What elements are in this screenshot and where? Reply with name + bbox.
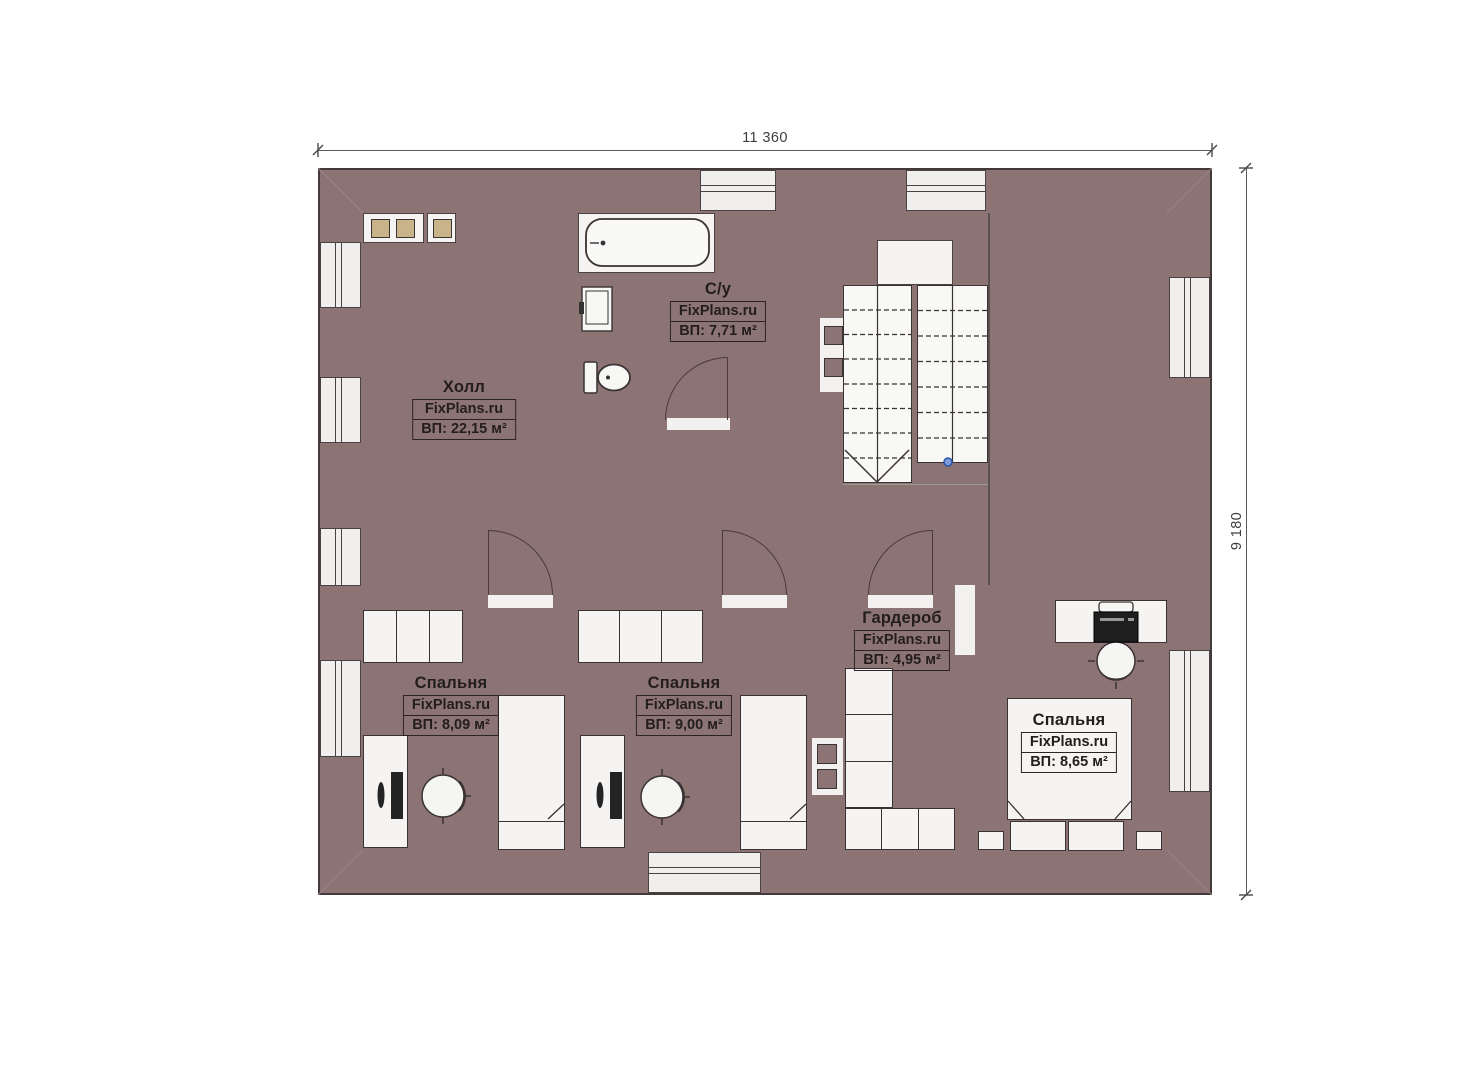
vent-duct (824, 326, 843, 345)
bedroom-2-desk (580, 735, 625, 848)
room-label-bedroom-3: Спальня FixPlans.ru ВП: 8,65 м² (1021, 711, 1117, 773)
window-left-2 (320, 377, 361, 443)
room-label-bedroom-2: Спальня FixPlans.ru ВП: 9,00 м² (636, 674, 732, 736)
dimension-height-label: 9 180 (1229, 512, 1245, 550)
room-name: Гардероб (854, 609, 950, 628)
room-area-text: ВП: 7,71 м² (671, 321, 765, 341)
room-info-box: FixPlans.ru ВП: 9,00 м² (636, 695, 732, 736)
stair-landing (877, 240, 953, 285)
window-left-4-bedroom-1 (320, 660, 361, 757)
floor-plan-page: { "plan": { "dimension_width_label": "11… (0, 0, 1473, 1080)
room-name: Спальня (403, 674, 499, 693)
hall-south-wall-c (787, 595, 868, 608)
bedroom-3-pillow-2 (1068, 821, 1124, 851)
bed-blanket-line (741, 821, 806, 822)
bathroom-east-wall-lower (820, 392, 845, 418)
dimension-line-right (1246, 168, 1247, 895)
stairwell-partition-line (988, 213, 990, 585)
door-opening-bedroom-3 (955, 585, 975, 655)
wardrobe-east-wall (955, 655, 975, 850)
watermark-text: FixPlans.ru (637, 696, 731, 715)
dimension-width-label: 11 360 (742, 130, 788, 146)
vent-duct (824, 358, 843, 377)
room-info-box: FixPlans.ru ВП: 8,09 м² (403, 695, 499, 736)
room-label-hall: Холл FixPlans.ru ВП: 22,15 м² (412, 378, 516, 440)
room-area-text: ВП: 4,95 м² (855, 650, 949, 670)
cabinet-box (396, 219, 415, 238)
room-name: Холл (412, 378, 516, 397)
room-area-text: ВП: 9,00 м² (637, 715, 731, 735)
bedroom-3-north-wall (975, 585, 1167, 598)
cabinet-box (433, 219, 452, 238)
bedroom-3-nightstand-right (1136, 831, 1162, 850)
watermark-text: FixPlans.ru (1022, 733, 1116, 752)
vent-duct-niche-bathroom (820, 318, 845, 392)
room-area-text: ВП: 8,09 м² (404, 715, 498, 735)
room-label-wardrobe: Гардероб FixPlans.ru ВП: 4,95 м² (854, 609, 950, 671)
bedroom-1-desk (363, 735, 408, 848)
window-top-2 (906, 170, 986, 211)
vent-duct (817, 769, 837, 789)
door-threshold-bedroom-1 (488, 595, 553, 608)
bedroom-3-pillow-1 (1010, 821, 1066, 851)
bedroom-3-nightstand-left (978, 831, 1004, 850)
dimension-line-top (318, 150, 1212, 151)
watermark-text: FixPlans.ru (404, 696, 498, 715)
vent-duct-niche-bedroom (812, 738, 843, 795)
hall-south-wall-d (933, 595, 955, 608)
bed-blanket-line (499, 821, 564, 822)
wardrobe-shelf-bottom (845, 808, 955, 850)
watermark-text: FixPlans.ru (855, 631, 949, 650)
door-threshold-bedroom-2 (722, 595, 787, 608)
stair-hall-boundary-line (843, 484, 988, 485)
bathroom-south-wall-right (730, 418, 845, 430)
room-area-text: ВП: 8,65 м² (1022, 752, 1116, 772)
room-name: Спальня (1021, 711, 1117, 730)
stair-flight-right (917, 285, 988, 463)
room-label-bathroom: С/у FixPlans.ru ВП: 7,71 м² (670, 280, 766, 342)
room-info-box: FixPlans.ru ВП: 22,15 м² (412, 399, 516, 440)
room-info-box: FixPlans.ru ВП: 8,65 м² (1021, 732, 1117, 773)
hall-south-wall-b (553, 595, 722, 608)
bedroom-divider-wall-2 (810, 608, 845, 850)
bathroom-south-wall-left (565, 418, 667, 430)
room-name: С/у (670, 280, 766, 299)
bedroom-divider-wall-1 (565, 608, 578, 850)
watermark-text: FixPlans.ru (413, 400, 515, 419)
room-area-text: ВП: 22,15 м² (413, 419, 515, 439)
room-info-box: FixPlans.ru ВП: 4,95 м² (854, 630, 950, 671)
bedroom-2-bed (740, 695, 807, 850)
room-label-bedroom-1: Спальня FixPlans.ru ВП: 8,09 м² (403, 674, 499, 736)
bathroom-west-wall (565, 213, 578, 430)
door-threshold-wardrobe (868, 595, 933, 608)
window-bottom-bedroom-2 (648, 852, 761, 893)
bathroom-east-wall-upper (820, 213, 845, 318)
vent-duct (817, 744, 837, 764)
bathtub-niche (578, 213, 715, 273)
room-name: Спальня (636, 674, 732, 693)
window-right-2-bedroom-3 (1169, 650, 1210, 792)
window-left-1 (320, 242, 361, 308)
bedroom-1-bed (498, 695, 565, 850)
hall-south-wall-a (363, 595, 488, 608)
bedroom-2-wardrobe-cabinet (578, 610, 703, 663)
cabinet-box (371, 219, 390, 238)
floor-plan: 11 360 9 180 (0, 0, 1473, 1080)
window-left-3 (320, 528, 361, 586)
bedroom-1-wardrobe-cabinet (363, 610, 463, 663)
watermark-text: FixPlans.ru (671, 302, 765, 321)
wardrobe-shelf-left (845, 668, 893, 808)
window-top-1 (700, 170, 776, 211)
bedroom-3-desk (1055, 600, 1167, 643)
room-info-box: FixPlans.ru ВП: 7,71 м² (670, 301, 766, 342)
window-right-1-stairwell (1169, 277, 1210, 378)
stair-flight-left (843, 285, 912, 483)
